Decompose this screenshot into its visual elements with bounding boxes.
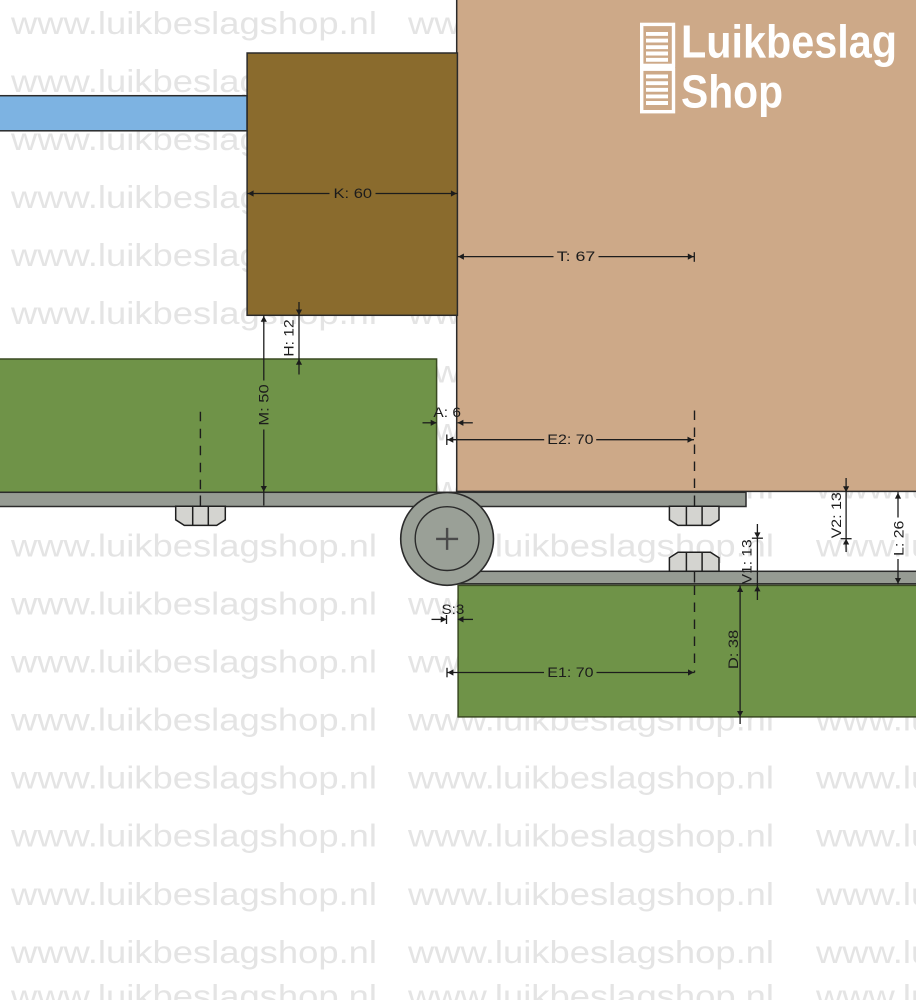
svg-text:S:3: S:3 [442, 601, 465, 617]
svg-text:www.luikbeslagshop.nl: www.luikbeslagshop.nl [10, 702, 377, 738]
svg-text:www.luikbeslagshop.nl: www.luikbeslagshop.nl [10, 978, 377, 1000]
svg-text:www.luikbeslagshop.nl: www.luikbeslagshop.nl [815, 818, 916, 854]
svg-text:T: 67: T: 67 [557, 248, 596, 264]
svg-text:www.luikbeslagshop.nl: www.luikbeslagshop.nl [815, 934, 916, 970]
svg-text:L: 26: L: 26 [890, 520, 906, 555]
svg-text:www.luikbeslagshop.nl: www.luikbeslagshop.nl [407, 934, 774, 970]
svg-text:www.luikbeslagshop.nl: www.luikbeslagshop.nl [10, 5, 377, 41]
svg-text:www.luikbeslagshop.nl: www.luikbeslagshop.nl [407, 978, 774, 1000]
svg-text:E1: 70: E1: 70 [547, 664, 593, 680]
svg-text:A: 6: A: 6 [433, 404, 461, 420]
svg-text:www.luikbeslagshop.nl: www.luikbeslagshop.nl [10, 934, 377, 970]
svg-text:www.luikbeslagshop.nl: www.luikbeslagshop.nl [407, 760, 774, 796]
svg-text:www.luikbeslagshop.nl: www.luikbeslagshop.nl [815, 760, 916, 796]
svg-text:Shop: Shop [681, 66, 783, 118]
svg-text:www.luikbeslagshop.nl: www.luikbeslagshop.nl [10, 818, 377, 854]
svg-text:www.luikbeslagshop.nl: www.luikbeslagshop.nl [10, 760, 377, 796]
svg-text:www.luikbeslagshop.nl: www.luikbeslagshop.nl [407, 818, 774, 854]
svg-text:www.luikbeslagshop.nl: www.luikbeslagshop.nl [10, 876, 377, 912]
svg-text:www.luikbeslagshop.nl: www.luikbeslagshop.nl [815, 876, 916, 912]
svg-text:Luikbeslag: Luikbeslag [681, 16, 897, 68]
svg-text:V2: 13: V2: 13 [828, 492, 844, 538]
svg-text:E2: 70: E2: 70 [547, 431, 593, 447]
svg-text:D: 38: D: 38 [725, 630, 741, 670]
svg-text:www.luikbeslagshop.nl: www.luikbeslagshop.nl [407, 876, 774, 912]
svg-text:M: 50: M: 50 [255, 384, 271, 426]
svg-text:H: 12: H: 12 [280, 319, 296, 356]
svg-text:www.luikbeslagshop.nl: www.luikbeslagshop.nl [10, 527, 377, 563]
svg-text:www.luikbeslagshop.nl: www.luikbeslagshop.nl [10, 586, 377, 622]
svg-text:K: 60: K: 60 [334, 185, 373, 201]
svg-text:www.luikbeslagshop.nl: www.luikbeslagshop.nl [815, 978, 916, 1000]
svg-text:www.luikbeslagshop.nl: www.luikbeslagshop.nl [10, 644, 377, 680]
svg-text:V1: 13: V1: 13 [739, 539, 755, 584]
